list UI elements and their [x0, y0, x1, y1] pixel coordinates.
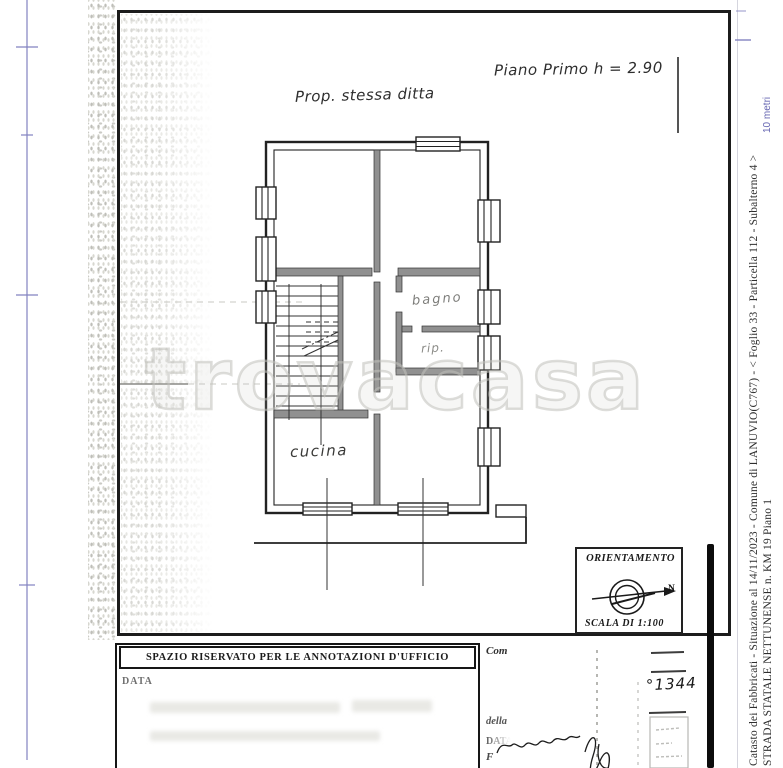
form-reference-number: °1344	[646, 674, 698, 695]
form-date-label: DATA	[486, 736, 513, 747]
scale-metri-note: 10 metri	[762, 97, 773, 133]
drawing-frame	[117, 10, 731, 636]
room-label-cucina: cucina	[290, 441, 348, 461]
scale-ruler-left	[16, 0, 38, 760]
room-label-rip: rip.	[421, 340, 445, 355]
north-label: N	[668, 584, 675, 594]
faded-text-ghost	[150, 702, 340, 713]
cadastral-reference-line: Catasto dei Fabbricati - Situazione al 1…	[747, 16, 761, 766]
form-firma-label: F	[486, 751, 493, 763]
office-date-label: DATA	[122, 676, 153, 687]
faded-text-ghost	[150, 731, 380, 741]
scale-label: SCALA DI 1:100	[585, 618, 664, 629]
orientation-title: ORIENTAMENTO	[583, 553, 678, 564]
form-della-label: della	[486, 716, 507, 727]
form-rule-lines	[597, 650, 688, 768]
scan-fold-bar	[707, 544, 714, 768]
office-annotations-header: SPAZIO RISERVATO PER LE ANNOTAZIONI D'UF…	[119, 646, 476, 669]
scanned-cadastral-plan-page: trovacasa Prop. stessa ditta Piano Primo…	[0, 0, 783, 768]
property-note: Prop. stessa ditta	[295, 84, 435, 106]
signature	[497, 736, 609, 768]
sheet-edge-line	[737, 0, 738, 768]
floor-height-note: Piano Primo h = 2.90	[494, 59, 663, 80]
faded-text-ghost	[352, 700, 432, 712]
scan-line-artifact	[677, 57, 679, 133]
form-committente-label: Com	[486, 645, 507, 657]
scan-noise-strip-outer	[88, 0, 117, 640]
